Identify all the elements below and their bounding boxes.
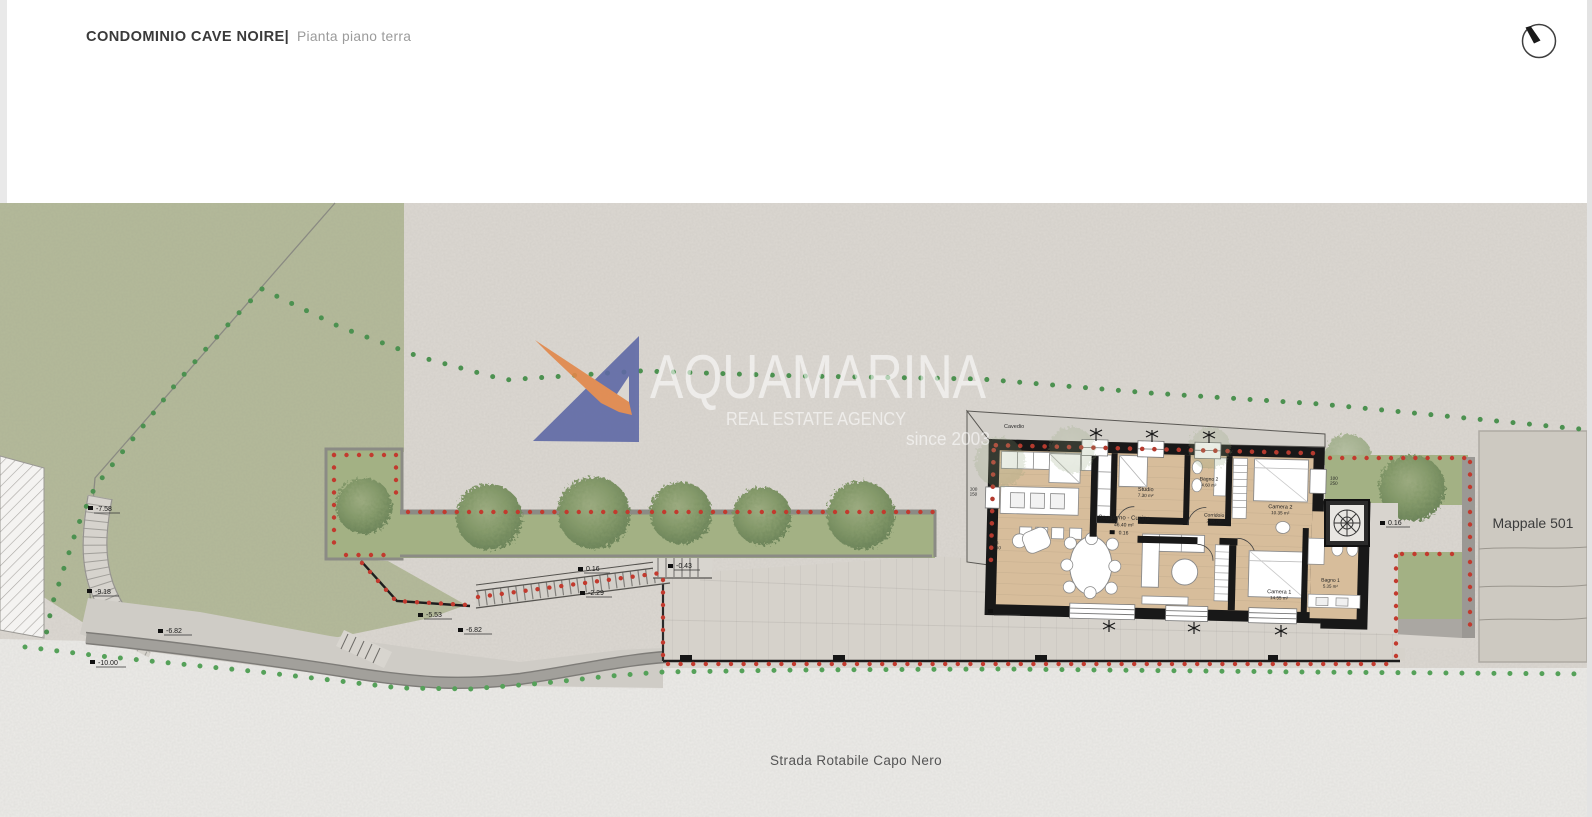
svg-text:2.85 m²: 2.85 m² [1206, 519, 1222, 524]
svg-text:-10.00: -10.00 [98, 660, 118, 667]
svg-text:Cavedio: Cavedio [1004, 424, 1024, 430]
svg-text:REAL ESTATE AGENCY: REAL ESTATE AGENCY [726, 409, 906, 429]
svg-text:-7.58: -7.58 [96, 506, 112, 513]
svg-text:5.35 m²: 5.35 m² [1323, 583, 1339, 588]
svg-text:-0.43: -0.43 [676, 563, 692, 570]
svg-text:150: 150 [993, 545, 1001, 550]
svg-text:250: 250 [1330, 481, 1338, 486]
svg-text:0.16: 0.16 [586, 566, 600, 573]
svg-text:since 2003: since 2003 [906, 429, 990, 449]
svg-text:Mappale 501: Mappale 501 [1493, 515, 1574, 531]
svg-text:-9.18: -9.18 [95, 589, 111, 596]
svg-text:14.55 m²: 14.55 m² [1270, 595, 1289, 600]
svg-text:150: 150 [970, 492, 978, 497]
svg-text:4.60 m²: 4.60 m² [1201, 482, 1217, 487]
svg-text:-6.82: -6.82 [166, 628, 182, 635]
svg-text:0.16: 0.16 [1388, 520, 1402, 527]
svg-text:-5.53: -5.53 [426, 612, 442, 619]
svg-text:-6.82: -6.82 [466, 627, 482, 634]
svg-text:-2.29: -2.29 [588, 590, 604, 597]
svg-text:46.40 m²: 46.40 m² [1114, 522, 1134, 529]
svg-text:7.30 m²: 7.30 m² [1138, 493, 1154, 498]
svg-text:Strada Rotabile Capo Nero: Strada Rotabile Capo Nero [770, 753, 942, 768]
svg-text:AQUAMARINA: AQUAMARINA [650, 343, 987, 412]
svg-text:0.16: 0.16 [996, 608, 1010, 615]
svg-text:10.35 m²: 10.35 m² [1271, 510, 1290, 515]
svg-text:0.16: 0.16 [1119, 530, 1129, 536]
